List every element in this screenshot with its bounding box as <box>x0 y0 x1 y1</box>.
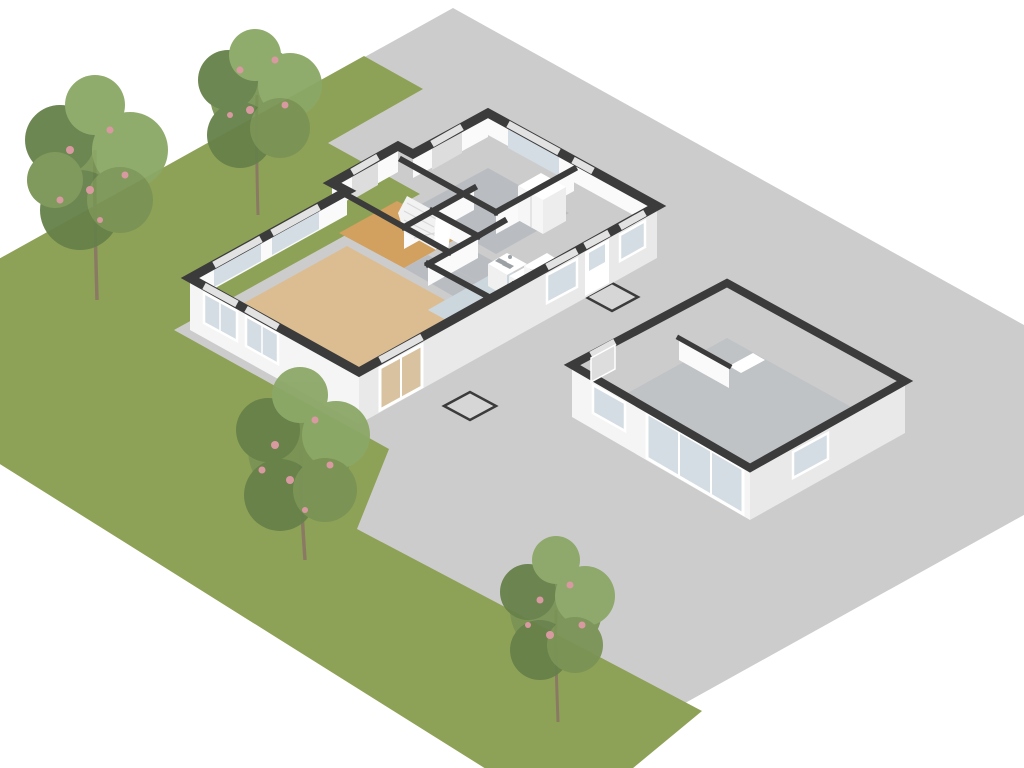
faucet <box>508 255 512 259</box>
scene-canvas <box>0 0 1024 768</box>
floorplan-3d-render <box>0 0 1024 768</box>
